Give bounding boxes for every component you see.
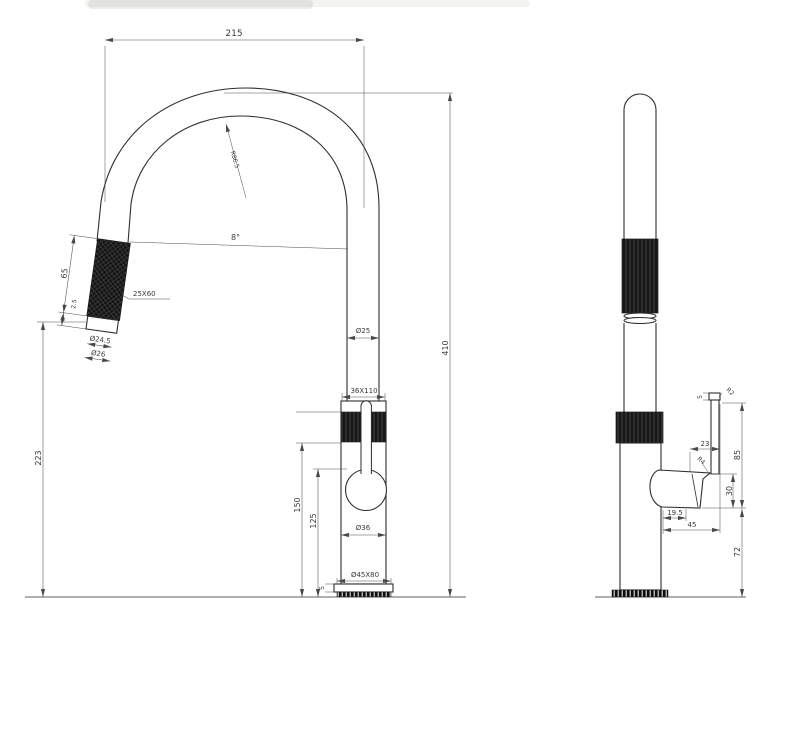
dim-base-size: Ø45X80 xyxy=(351,571,379,579)
dim-body-height: 150 xyxy=(293,497,302,512)
dim-cartridge-height: 30 xyxy=(725,486,734,496)
base-plate-dim: 5 xyxy=(319,584,335,592)
handle-stem xyxy=(361,401,371,474)
dim-head-angle: 8° xyxy=(231,233,240,242)
front-view: 65 2.5 Ø24.5 Ø26 25X60 8° R86.5 xyxy=(25,29,466,597)
side-base-knurl xyxy=(612,590,668,597)
dim-loop-height: 125 xyxy=(309,513,318,528)
spout-outer-curve xyxy=(97,88,379,401)
faucet-drawing-svg: 65 2.5 Ø24.5 Ø26 25X60 8° R86.5 xyxy=(0,0,800,733)
lever-tip-radius-callout: R2 xyxy=(719,386,735,397)
handle-loop xyxy=(346,470,387,511)
dim-head-tip-offset: 2.5 xyxy=(70,299,78,310)
lever-cap-dim: 5 xyxy=(697,393,710,400)
dim-lever-height: 85 xyxy=(733,450,742,460)
dim-head-knurl: 25X60 xyxy=(133,290,156,298)
dim-head-length: 65 xyxy=(59,268,69,279)
side-handle-body xyxy=(650,470,710,508)
technical-drawing-page: 65 2.5 Ø24.5 Ø26 25X60 8° R86.5 xyxy=(0,0,800,733)
dim-head-outlet-dia: Ø24.5 xyxy=(89,335,111,346)
dim-handle-offset: 19.5 xyxy=(667,509,683,517)
spray-head: 65 2.5 Ø24.5 Ø26 xyxy=(49,234,130,361)
spout-dia-dim: Ø25 xyxy=(347,327,379,338)
top-watermark-remnant xyxy=(85,0,530,9)
head-knurl-label: 25X60 xyxy=(122,290,170,299)
outlet-height-dim: 223 xyxy=(34,322,86,597)
dim-lever-offset: 23 xyxy=(701,440,710,448)
head-angle-dim: 8° xyxy=(130,233,348,249)
dim-width-top: 215 xyxy=(225,29,242,39)
spray-head-knurl xyxy=(87,239,131,321)
dim-body-dia: Ø36 xyxy=(356,524,371,532)
lever-height-dim: 85 xyxy=(702,403,746,508)
dim-bend-radius: R86.5 xyxy=(229,150,241,169)
side-lever xyxy=(711,400,719,474)
dim-pivot-radius: R4 xyxy=(696,455,707,466)
bend-radius-dim: R86.5 xyxy=(226,124,246,198)
side-lever-cap xyxy=(709,393,720,400)
body-height-dims: 150 125 xyxy=(293,412,347,597)
handle-ground-dim: 72 xyxy=(733,509,742,597)
handle-reach-dim: 45 xyxy=(663,521,720,530)
dim-handle-ground: 72 xyxy=(733,547,742,557)
dim-lever-tip-radius: R2 xyxy=(725,386,736,397)
dim-spout-dia: Ø25 xyxy=(356,327,370,335)
side-head-tip-ring2 xyxy=(624,318,656,324)
dim-outlet-height: 223 xyxy=(34,450,43,465)
dim-base-plate-height: 5 xyxy=(319,586,326,590)
side-view: 5 R2 23 R4 85 30 xyxy=(595,94,746,597)
side-head-knurl xyxy=(622,239,658,313)
base-plate xyxy=(334,584,393,592)
side-body xyxy=(620,443,661,590)
base-knurl xyxy=(337,592,391,597)
dim-overall-height: 410 xyxy=(441,340,450,355)
dim-lever-cap: 5 xyxy=(697,395,704,399)
top-width-dim: 215 xyxy=(105,29,364,208)
dim-head-outer-dia: Ø26 xyxy=(90,349,106,359)
cartridge-height-dim: 30 xyxy=(708,474,737,508)
dim-body-knurl: 36X110 xyxy=(350,387,377,395)
pivot-radius-callout: R4 xyxy=(696,455,708,472)
side-body-knurl xyxy=(616,412,663,443)
side-neck xyxy=(624,94,656,240)
dim-handle-reach: 45 xyxy=(688,521,697,529)
